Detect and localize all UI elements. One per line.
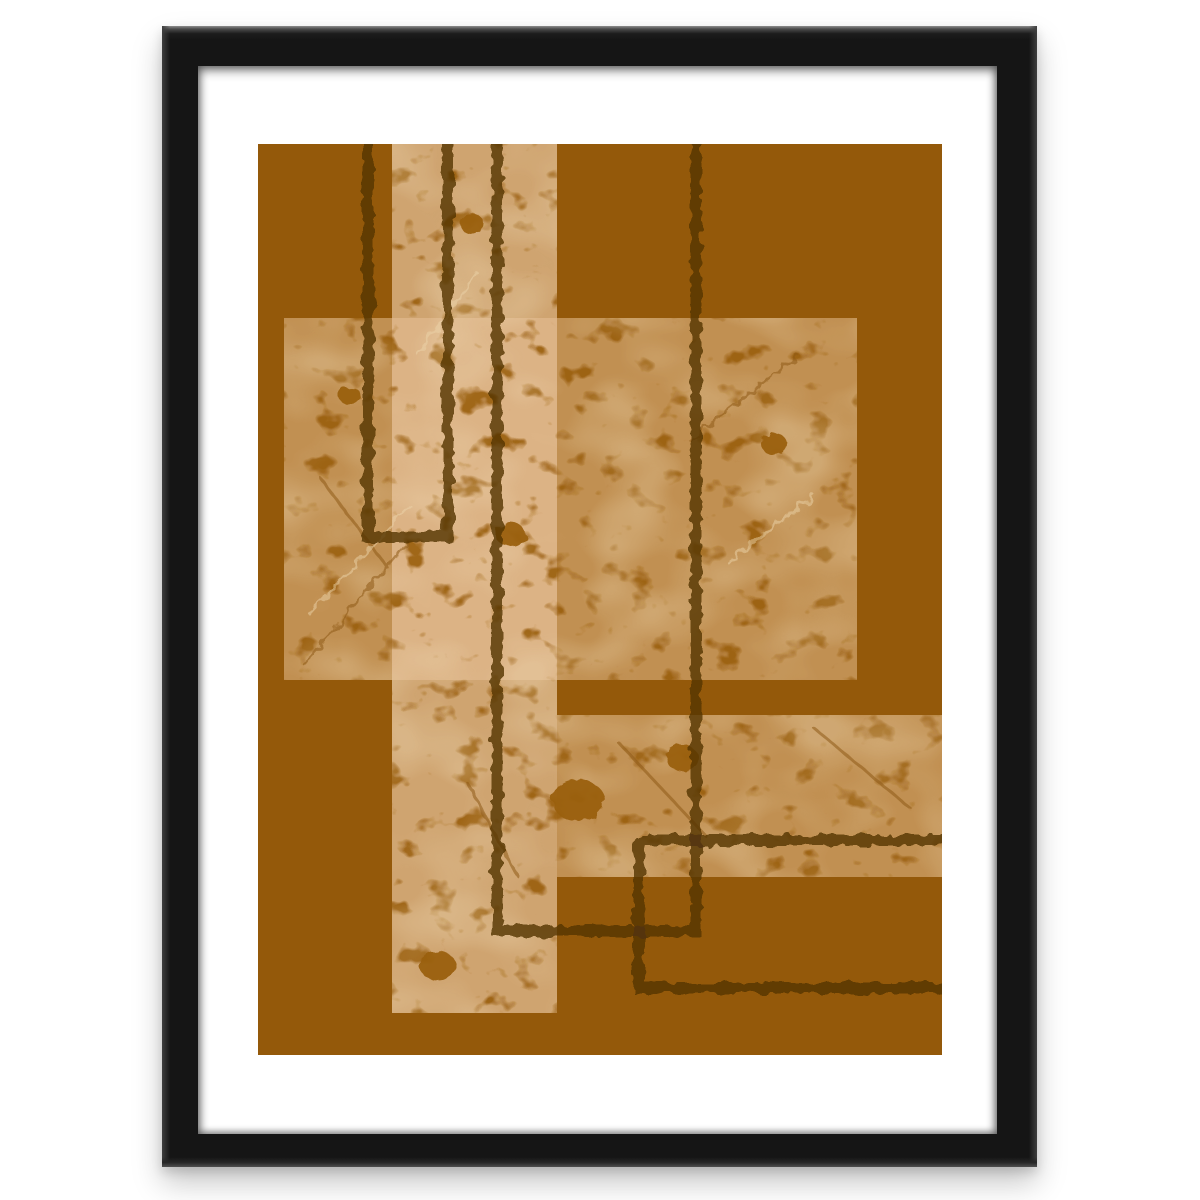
paint-blob — [552, 779, 604, 821]
art-print — [258, 144, 942, 1055]
frame-bevel-right — [1029, 26, 1037, 1167]
abstract-artwork — [258, 144, 942, 1055]
paint-blob — [460, 214, 484, 234]
frame-bevel-left — [162, 26, 170, 1167]
picture-frame — [162, 26, 1037, 1167]
paint-blob — [420, 951, 456, 981]
frame-bevel-top — [162, 26, 1037, 40]
mat-board — [198, 66, 997, 1134]
frame-bevel-bottom — [162, 1157, 1037, 1167]
paint-blob — [339, 387, 361, 405]
paint-blob — [761, 433, 787, 455]
framed-art-photo — [0, 0, 1200, 1200]
